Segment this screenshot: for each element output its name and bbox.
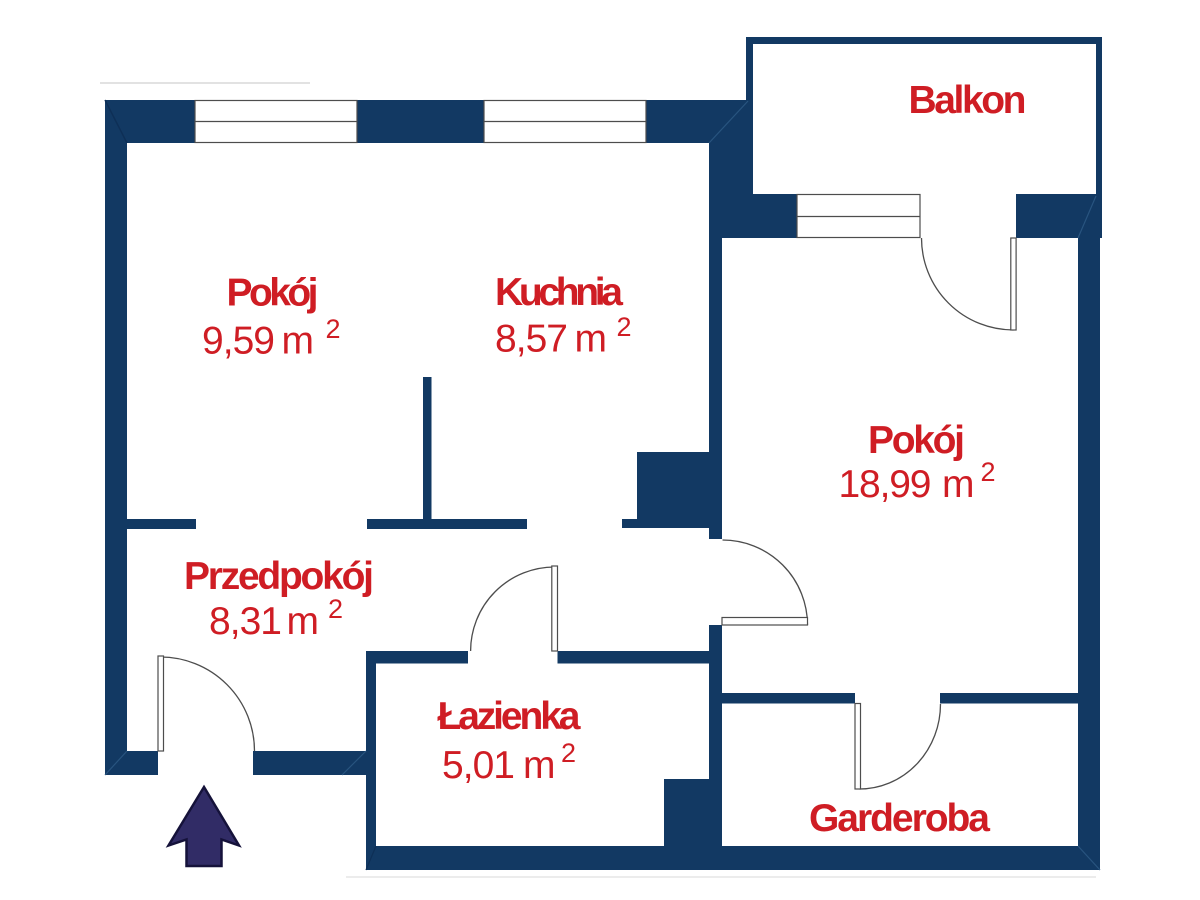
svg-text:8,31: 8,31 <box>209 600 282 643</box>
svg-text:Pokój: Pokój <box>868 419 965 462</box>
svg-text:2: 2 <box>981 457 996 487</box>
svg-text:9,59: 9,59 <box>202 320 275 363</box>
svg-text:18,99: 18,99 <box>839 463 932 506</box>
svg-text:m: m <box>523 744 556 787</box>
svg-text:m: m <box>287 600 320 643</box>
svg-text:m: m <box>942 463 975 506</box>
svg-text:Pokój: Pokój <box>227 272 319 315</box>
svg-text:5,01: 5,01 <box>442 744 515 787</box>
svg-text:m: m <box>282 320 315 363</box>
svg-text:Łazienka: Łazienka <box>438 695 581 738</box>
svg-text:Balkon: Balkon <box>909 79 1027 122</box>
svg-text:m: m <box>575 318 608 361</box>
svg-text:Przedpokój: Przedpokój <box>184 555 374 598</box>
svg-text:8,57: 8,57 <box>495 318 568 361</box>
svg-text:2: 2 <box>617 312 632 342</box>
svg-text:Garderoba: Garderoba <box>809 797 990 840</box>
svg-text:Kuchnia: Kuchnia <box>495 271 623 314</box>
svg-text:2: 2 <box>326 314 341 344</box>
svg-text:2: 2 <box>328 594 343 624</box>
svg-text:2: 2 <box>561 738 576 768</box>
